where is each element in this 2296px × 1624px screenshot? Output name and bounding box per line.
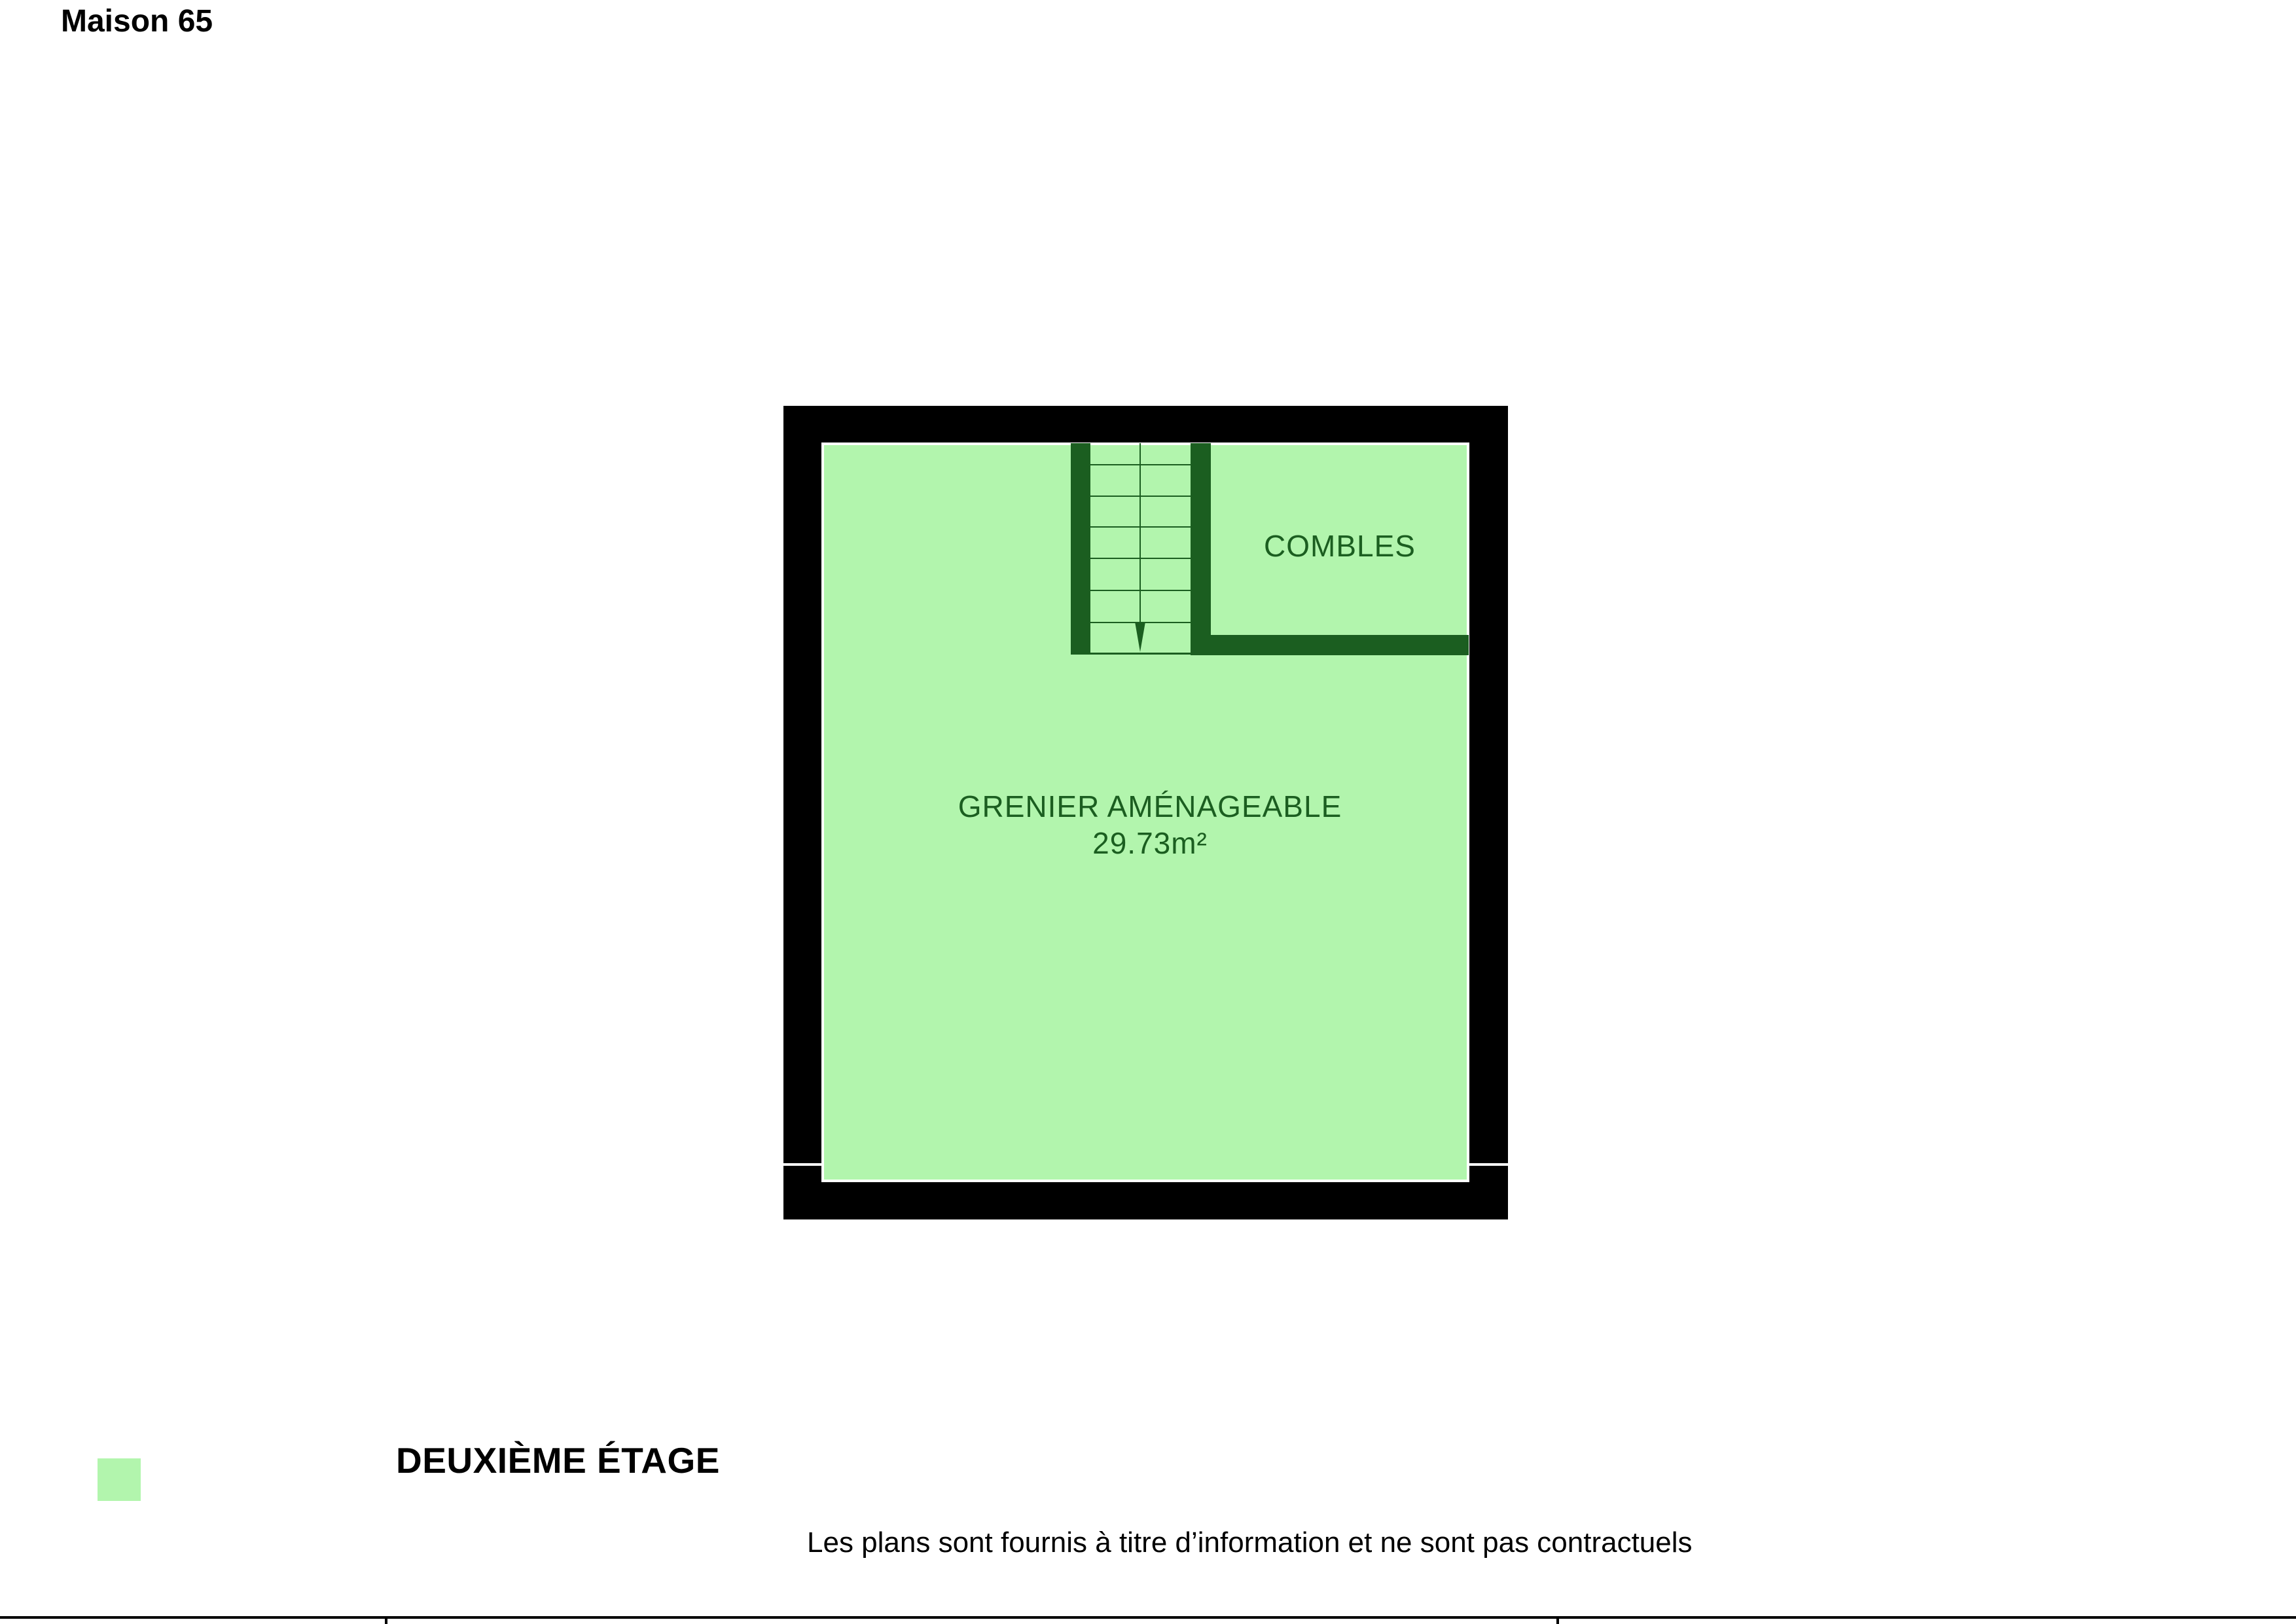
room-label-grenier: GRENIER AMÉNAGEABLE 29.73m² bbox=[888, 788, 1412, 861]
stair-tread-line bbox=[1090, 622, 1191, 623]
outer-wall-right bbox=[1469, 406, 1508, 1163]
legend-label: Maison 65 bbox=[61, 1, 213, 42]
stair-wall-left bbox=[1071, 443, 1090, 655]
cropped-table-column-divider bbox=[385, 1619, 387, 1624]
stair-tread-line bbox=[1090, 558, 1191, 559]
room-label-combles: COMBLES bbox=[1211, 528, 1469, 564]
grenier-area: 29.73m² bbox=[888, 825, 1412, 861]
cropped-table-top-border bbox=[0, 1616, 2296, 1619]
combles-name: COMBLES bbox=[1264, 529, 1416, 563]
combles-partition-wall bbox=[1191, 635, 1469, 655]
staircase bbox=[1090, 443, 1191, 655]
cropped-table-column-divider bbox=[1556, 1619, 1559, 1624]
stair-tread-line bbox=[1090, 526, 1191, 528]
outer-wall-left bbox=[783, 406, 822, 1163]
page: COMBLES GRENIER AMÉNAGEABLE 29.73m² Mais… bbox=[0, 0, 2296, 1624]
stair-tread-line bbox=[1090, 590, 1191, 591]
disclaimer-text: Les plans sont fournis à titre d’informa… bbox=[807, 1526, 1693, 1560]
outer-wall-top bbox=[783, 406, 1508, 443]
stair-center-divider bbox=[1139, 443, 1141, 622]
stair-tread-line bbox=[1090, 464, 1191, 465]
floor-plan: COMBLES GRENIER AMÉNAGEABLE 29.73m² bbox=[783, 406, 1508, 1219]
legend-color-swatch bbox=[98, 1458, 141, 1501]
floor-title: DEUXIÈME ÉTAGE bbox=[396, 1439, 720, 1481]
stair-direction-arrow-icon bbox=[1135, 622, 1145, 652]
stair-tread-line bbox=[1090, 496, 1191, 497]
grenier-name: GRENIER AMÉNAGEABLE bbox=[888, 788, 1412, 825]
stair-wall-right bbox=[1191, 443, 1211, 655]
